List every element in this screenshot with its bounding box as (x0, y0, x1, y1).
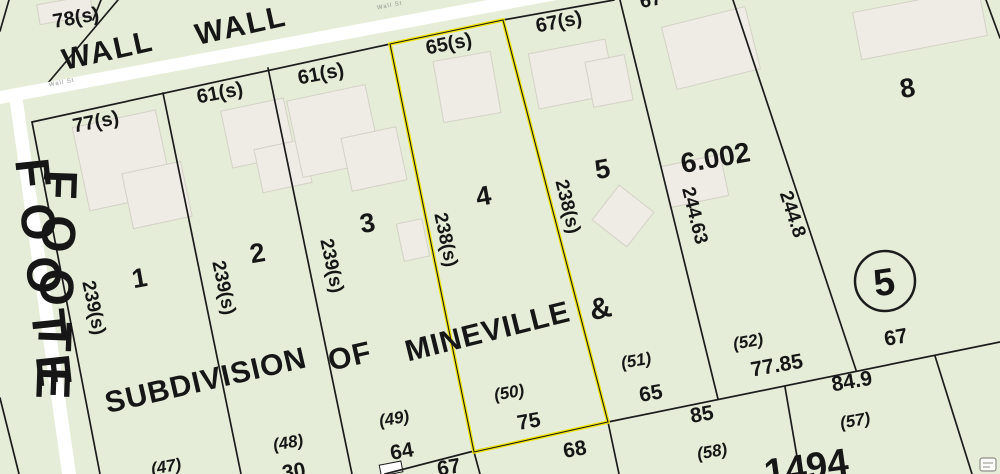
dimension-label-68: 68 (561, 436, 588, 463)
dimension-label-85: 85 (688, 401, 715, 428)
dimension-label-64: 64 (388, 438, 415, 465)
parcel-map-view: Wall St Wall St 5 WALL WALL FOOTE FOOTE … (0, 0, 1000, 474)
parcel-map-canvas: Wall St Wall St 5 WALL WALL FOOTE FOOTE … (0, 0, 1000, 474)
building-footprint (341, 127, 407, 191)
dimension-label-65: 65 (637, 380, 664, 407)
street-name-foote-2: FOOTE (25, 169, 87, 416)
building-footprint (122, 161, 192, 228)
dimension-label-30: 30 (280, 458, 307, 474)
dimension-label-67-sw: 67 (435, 454, 462, 474)
dimension-label-67-circle5: 67 (882, 324, 909, 351)
building-footprint (585, 55, 633, 108)
dimension-label-75: 75 (515, 408, 542, 435)
building-footprint (433, 51, 501, 122)
map-attribution-icon[interactable] (980, 458, 996, 471)
